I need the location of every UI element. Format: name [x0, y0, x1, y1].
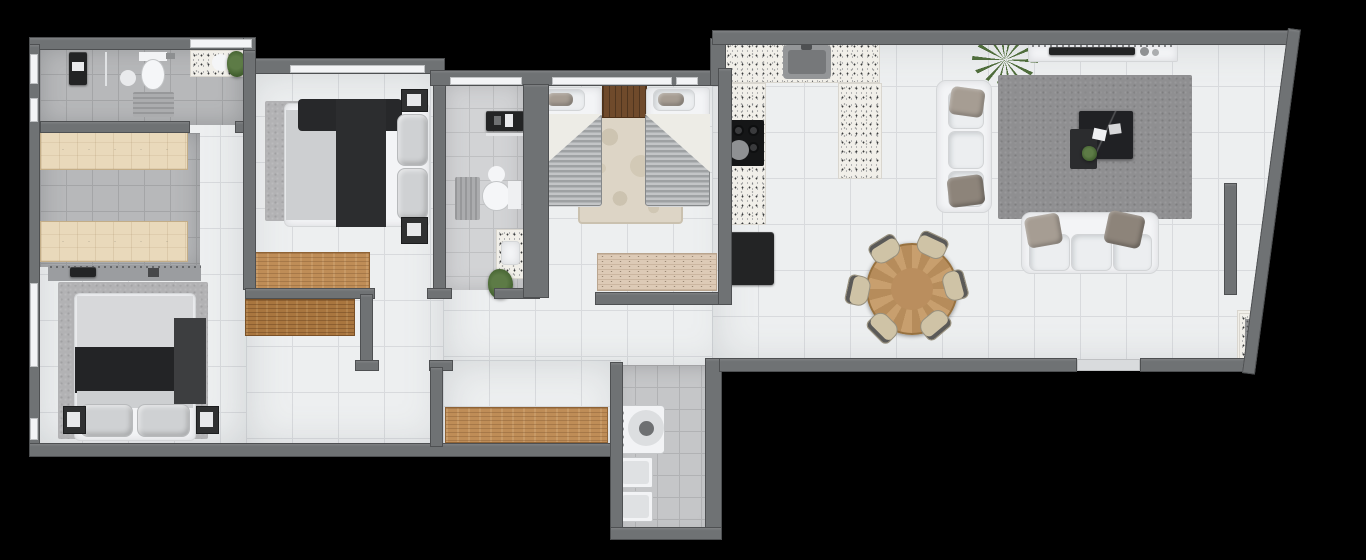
- window-bath-north: [190, 39, 252, 48]
- bed-mid-duvet-band: [336, 99, 386, 227]
- wall-bath-mid-west-cap: [427, 288, 452, 299]
- twin-bed-left-pillow-small: [547, 93, 573, 106]
- wall-laundry-east: [705, 358, 722, 538]
- bed-left-pillow-b: [137, 404, 190, 437]
- dresser-decor: [148, 268, 159, 277]
- wall-kitchen-west: [718, 68, 732, 305]
- wall-south-west: [29, 443, 621, 457]
- window-west-a: [30, 54, 38, 84]
- washstand-basin: [501, 241, 520, 265]
- wall-hall-stub-a: [360, 294, 373, 364]
- bench-travertine: [597, 253, 717, 291]
- wall-south-living-a: [719, 358, 1077, 372]
- shelf-bath-mid: [486, 133, 524, 136]
- sofa-side-cushion-b: [948, 131, 984, 169]
- sofa-side-pillow-a: [948, 86, 986, 118]
- toilet-main-bowl: [141, 59, 165, 90]
- console-decor-b: [1152, 49, 1159, 56]
- nightstand-left-b-lamp: [200, 412, 213, 427]
- bathroom-cabinet-accent: [72, 62, 84, 71]
- shower-stool: [120, 70, 136, 86]
- coffee-table-book-a: [1092, 128, 1107, 141]
- burner-a: [733, 125, 744, 136]
- bed-mid-pillow-b: [397, 168, 428, 220]
- laundry-sink-a-basin: [622, 461, 649, 484]
- burner-b: [748, 125, 759, 136]
- console-decor-a: [1140, 47, 1149, 56]
- wall-bath-mid-west: [433, 84, 446, 290]
- window-bedroom-mid-north: [290, 65, 425, 73]
- window-twin-north-a: [450, 77, 522, 85]
- bed-left-pillow-a: [80, 404, 133, 437]
- wall-corridor-east: [243, 50, 256, 290]
- coffee-table-book-b: [1108, 123, 1121, 135]
- laundry-sink-b-basin: [622, 495, 649, 518]
- pan: [729, 140, 749, 160]
- bath-mat-mid: [455, 177, 480, 220]
- tv-bedroom-left: [70, 267, 96, 277]
- twin-bed-right-pillow-small: [658, 93, 684, 106]
- window-twin-north-c: [676, 77, 698, 85]
- nightstand-mid-a-lamp: [407, 94, 421, 106]
- shower-glass-panel: [105, 52, 107, 86]
- window-west-b: [30, 98, 38, 122]
- toilet-mid-cistern: [508, 181, 521, 209]
- wall-hall-stub-a-cap: [355, 360, 379, 371]
- cabinet-bath-mid-accent2: [494, 116, 501, 125]
- wall-bath-mid-east: [523, 84, 549, 298]
- sofa-main-pillow-a: [1024, 212, 1064, 249]
- sofa-side-pillow-b: [946, 174, 985, 208]
- wall-twin-south: [595, 292, 732, 305]
- floor-plan: [0, 0, 1366, 560]
- shower-fixture: [166, 53, 175, 59]
- nightstand-left-a-lamp: [67, 412, 80, 427]
- tv-panel: [1049, 47, 1135, 55]
- bench-hallway-west: [245, 299, 355, 336]
- wall-top-living: [712, 30, 1297, 45]
- desk-bedroom-mid: [255, 252, 370, 289]
- entry-door: [1077, 359, 1140, 371]
- bench-hall-main: [445, 407, 608, 443]
- wall-bedroom-mid-south: [245, 288, 375, 299]
- nightstand-mid-b-lamp: [407, 223, 421, 236]
- dining-table-center: [891, 268, 933, 310]
- wall-bath-south: [40, 121, 190, 133]
- wall-terrace-stub: [1224, 183, 1237, 295]
- bath-mat-main: [133, 92, 174, 117]
- wardrobe-lower-knobs: [50, 239, 178, 244]
- kitchen-sink-basin: [788, 50, 826, 74]
- wall-laundry-west: [610, 362, 623, 538]
- wall-hall-stub-b: [430, 367, 443, 447]
- washer-lid-center: [639, 421, 654, 436]
- window-twin-north-b: [552, 77, 672, 85]
- bed-mid-pillow-a: [397, 114, 428, 166]
- twin-headboard: [602, 84, 647, 118]
- window-west-d: [30, 418, 38, 440]
- toilet-mid-bowl: [482, 181, 511, 211]
- cabinet-bath-mid-accent: [505, 114, 513, 127]
- wall-laundry-south: [610, 527, 722, 540]
- bed-left-throw: [174, 318, 206, 404]
- burner-c: [748, 142, 759, 153]
- counter-right: [838, 83, 882, 179]
- coffee-table-plant: [1082, 146, 1097, 161]
- wardrobe-upper-knobs: [50, 147, 178, 152]
- window-west-c: [30, 283, 38, 367]
